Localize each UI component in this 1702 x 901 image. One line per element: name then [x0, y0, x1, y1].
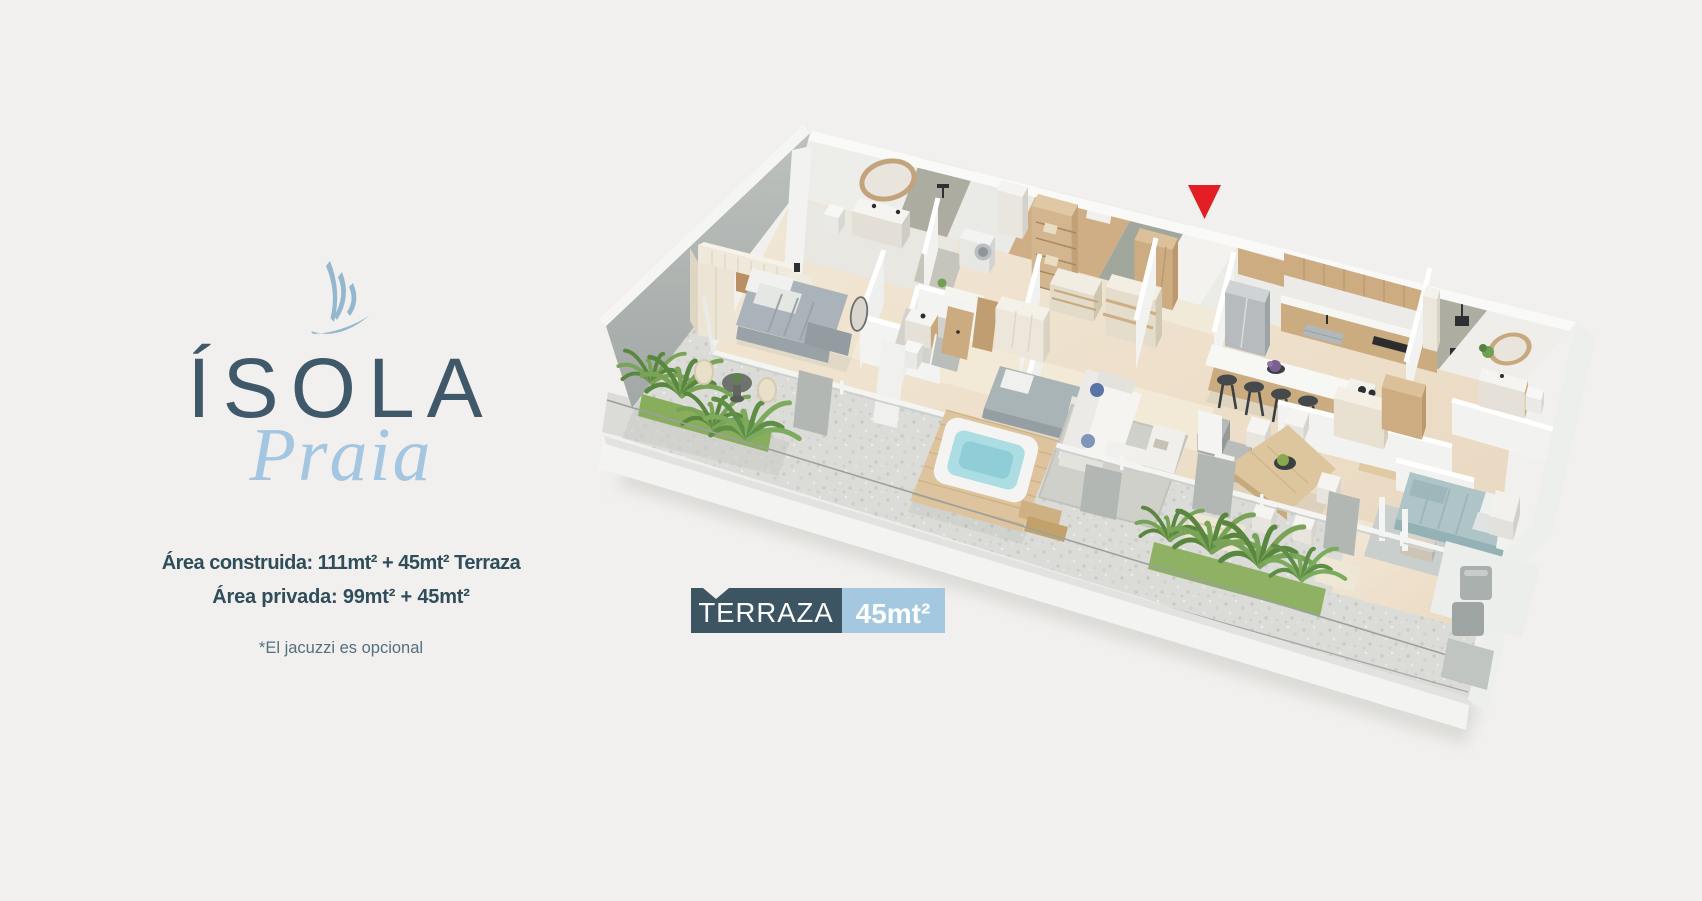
svg-text:TERRAZA: TERRAZA — [698, 597, 833, 628]
svg-text:45mt²: 45mt² — [856, 598, 931, 629]
svg-text:Área construida: 111mt² + 45mt: Área construida: 111mt² + 45mt² Terraza — [162, 551, 522, 574]
svg-text:*El jacuzzi es opcional: *El jacuzzi es opcional — [259, 639, 423, 657]
svg-text:Área privada: 99mt² + 45mt²: Área privada: 99mt² + 45mt² — [212, 585, 470, 608]
svg-text:Praia: Praia — [248, 413, 432, 497]
